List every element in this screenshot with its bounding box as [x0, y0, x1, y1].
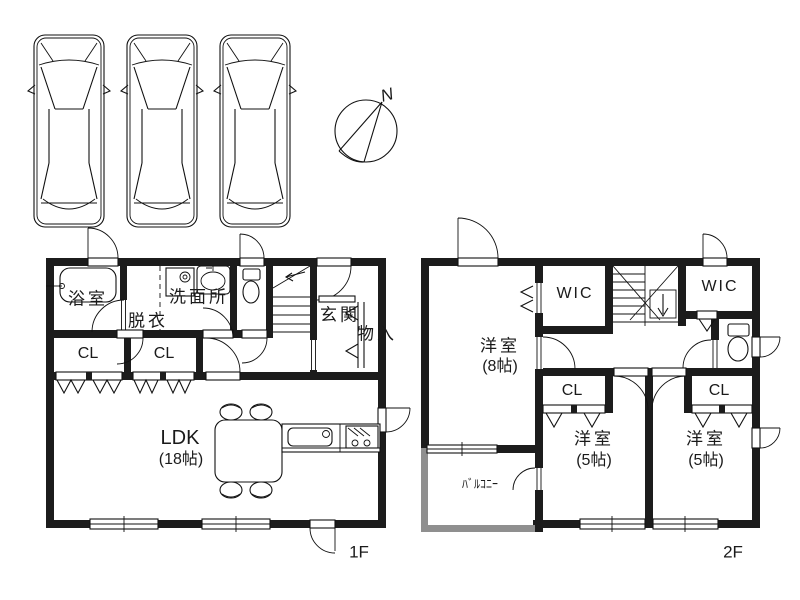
room-size-bedroom5-right-2f: (5帖): [688, 453, 724, 469]
room-label-ldk-1f: LDK: [161, 428, 200, 448]
floorplan-page: N 浴室 脱衣 洗面所 玄関 物入 CL CL LDK (18帖) 1F 洋室 …: [0, 0, 800, 600]
hall-genkan-door: [310, 340, 317, 370]
room-label-entrance-1f: 玄関: [320, 307, 360, 324]
parking-area: [28, 35, 296, 227]
room-label-storage-1f: 物入: [357, 326, 397, 343]
ldk-door: [206, 338, 240, 380]
room-size-bedroom5-left-2f: (5帖): [576, 453, 612, 469]
kitchen-counter-icon: [282, 424, 380, 452]
floorplan-drawing: [0, 0, 800, 600]
room-label-washroom-1f: 洗面所: [169, 289, 229, 306]
room-size-ldk-1f: (18帖): [159, 452, 203, 468]
staircase-icon: [273, 266, 310, 332]
floor-label-2f: 2F: [723, 544, 743, 561]
room-label-wic-right-2f: WIC: [701, 279, 738, 295]
room-label-closet-left-2f: CL: [562, 383, 582, 399]
room-label-closet-right-1f: CL: [154, 346, 174, 362]
wic-bifold-door: [521, 283, 543, 313]
genkan-step: [319, 296, 355, 302]
room-label-bedroom5-right-2f: 洋室: [686, 431, 726, 448]
car-icon: [121, 35, 203, 227]
balcony-door: [513, 468, 543, 490]
car-icon: [28, 35, 110, 227]
room-label-bathroom-1f: 浴室: [68, 291, 108, 308]
room-label-balcony-2f: ﾊﾞﾙｺﾆｰ: [462, 478, 498, 490]
toilet-icon: [728, 324, 749, 361]
room-label-wic-left-2f: WIC: [556, 286, 593, 302]
floor-label-1f: 1F: [349, 544, 369, 561]
staircase-icon: [613, 266, 678, 326]
toilet-door: [683, 340, 719, 368]
bedroom8-door: [535, 337, 575, 369]
room-label-dressing-1f: 脱衣: [128, 313, 168, 330]
car-icon: [214, 35, 296, 227]
floorplan-1f: [46, 228, 410, 553]
washroom-door: [203, 308, 233, 338]
room-label-closet-left-1f: CL: [78, 346, 98, 362]
room-label-closet-right-2f: CL: [709, 383, 729, 399]
room-label-bedroom5-left-2f: 洋室: [574, 431, 614, 448]
room-size-bedroom8-2f: (8帖): [482, 359, 518, 375]
room-label-bedroom8-2f: 洋室: [480, 338, 520, 355]
toilet-door: [242, 330, 267, 363]
window: [427, 442, 497, 456]
entrance-door: [317, 258, 351, 300]
toilet-icon: [243, 269, 260, 303]
compass-icon: [335, 100, 397, 162]
dining-table-icon: [215, 404, 282, 498]
